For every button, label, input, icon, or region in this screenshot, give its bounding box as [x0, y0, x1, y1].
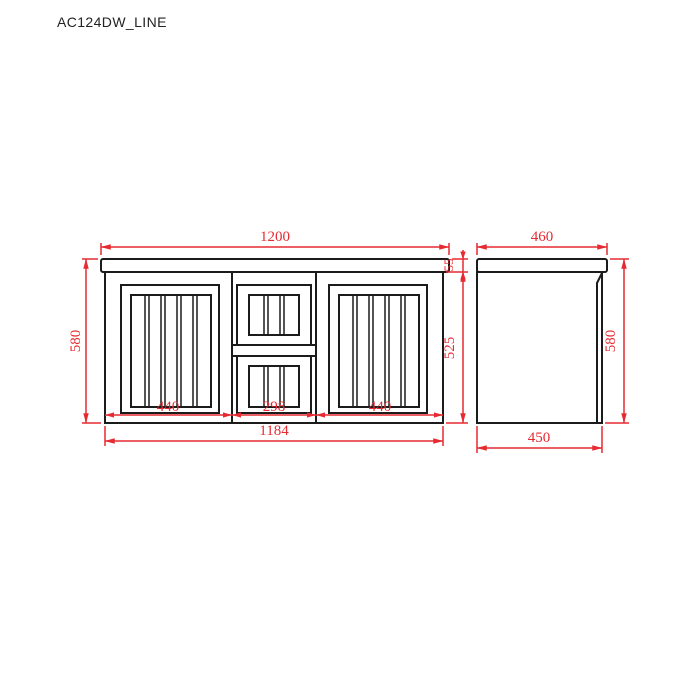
front-top-drawer-grooves [264, 295, 284, 335]
dim-front-left-height: 580 [68, 330, 84, 353]
front-countertop [101, 259, 449, 272]
front-left-door [121, 285, 219, 413]
dim-front-top-thickness: 55 [441, 259, 456, 272]
dim-front-segment-left: 440 [157, 399, 180, 415]
line-drawing-sheet: AC124DW_LINE [0, 0, 700, 700]
dimensions: 1200 580 55 525 440 298 440 1184 460 [68, 229, 629, 453]
side-cabinet-body [477, 272, 602, 423]
side-view [477, 259, 607, 423]
drawing-svg: 1200 580 55 525 440 298 440 1184 460 [0, 0, 700, 700]
dim-front-bottom-width: 1184 [259, 423, 289, 439]
dim-side-right-height: 580 [603, 330, 619, 353]
dim-front-segment-right: 440 [369, 399, 392, 415]
front-right-door-grooves [353, 295, 405, 407]
dim-front-segment-middle: 298 [263, 399, 286, 415]
front-left-door-grooves [145, 295, 197, 407]
side-countertop [477, 259, 607, 272]
front-drawer-rail [232, 345, 316, 356]
front-right-door [329, 285, 427, 413]
dim-side-bottom-depth: 450 [528, 430, 551, 446]
front-top-drawer-panel [249, 295, 299, 335]
front-left-door-panel [131, 295, 211, 407]
front-right-door-panel [339, 295, 419, 407]
dim-side-top-depth: 460 [531, 229, 554, 245]
extension-lines [82, 243, 629, 453]
dim-front-body-height: 525 [442, 337, 458, 360]
dim-front-top-width: 1200 [260, 229, 290, 245]
